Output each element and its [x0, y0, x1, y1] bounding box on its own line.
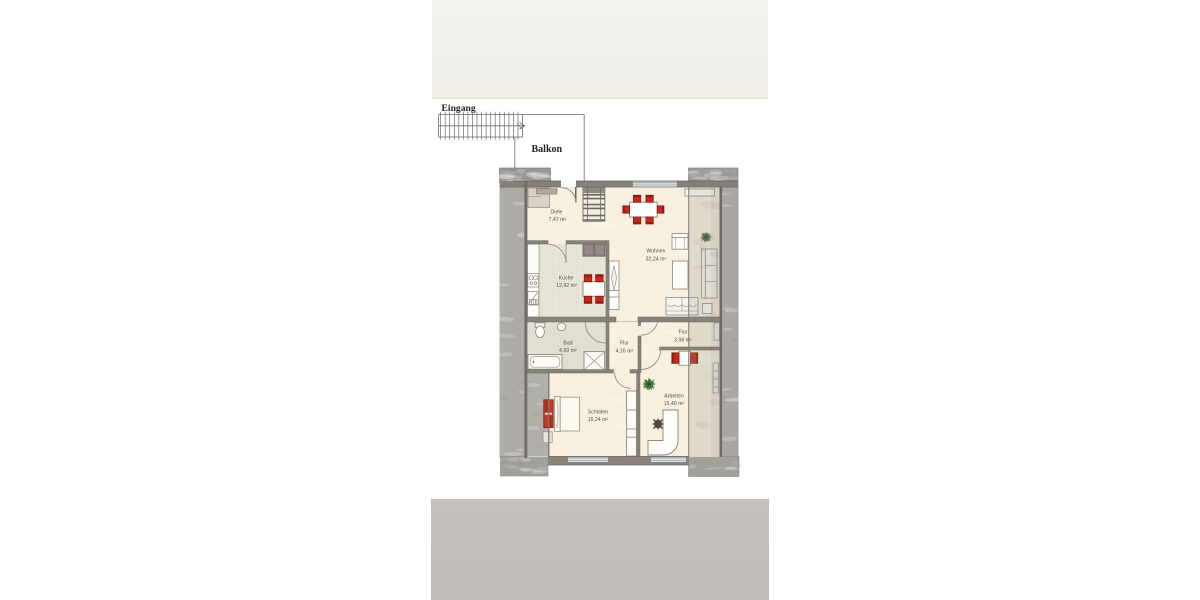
- svg-text:4,16 m²: 4,16 m²: [616, 349, 634, 355]
- svg-text:7,47 m²: 7,47 m²: [549, 217, 567, 223]
- svg-text:15,24 m²: 15,24 m²: [588, 417, 609, 423]
- svg-text:Bad: Bad: [563, 341, 572, 347]
- svg-text:Flur: Flur: [678, 330, 687, 336]
- svg-text:Arbeiten: Arbeiten: [664, 394, 684, 400]
- svg-text:Flur: Flur: [620, 341, 629, 347]
- svg-text:4,50 m²: 4,50 m²: [559, 348, 577, 354]
- svg-text:15,40 m²: 15,40 m²: [664, 401, 685, 407]
- svg-text:Diele: Diele: [551, 210, 563, 216]
- svg-text:Wohnen: Wohnen: [646, 249, 665, 255]
- svg-text:Balkon: Balkon: [532, 144, 563, 155]
- svg-text:12,92 m²: 12,92 m²: [556, 283, 577, 289]
- svg-text:32,24 m²: 32,24 m²: [646, 257, 667, 263]
- svg-text:Schlafen: Schlafen: [588, 410, 608, 416]
- svg-text:3,98 m²: 3,98 m²: [674, 338, 692, 344]
- svg-text:Küche: Küche: [559, 276, 574, 282]
